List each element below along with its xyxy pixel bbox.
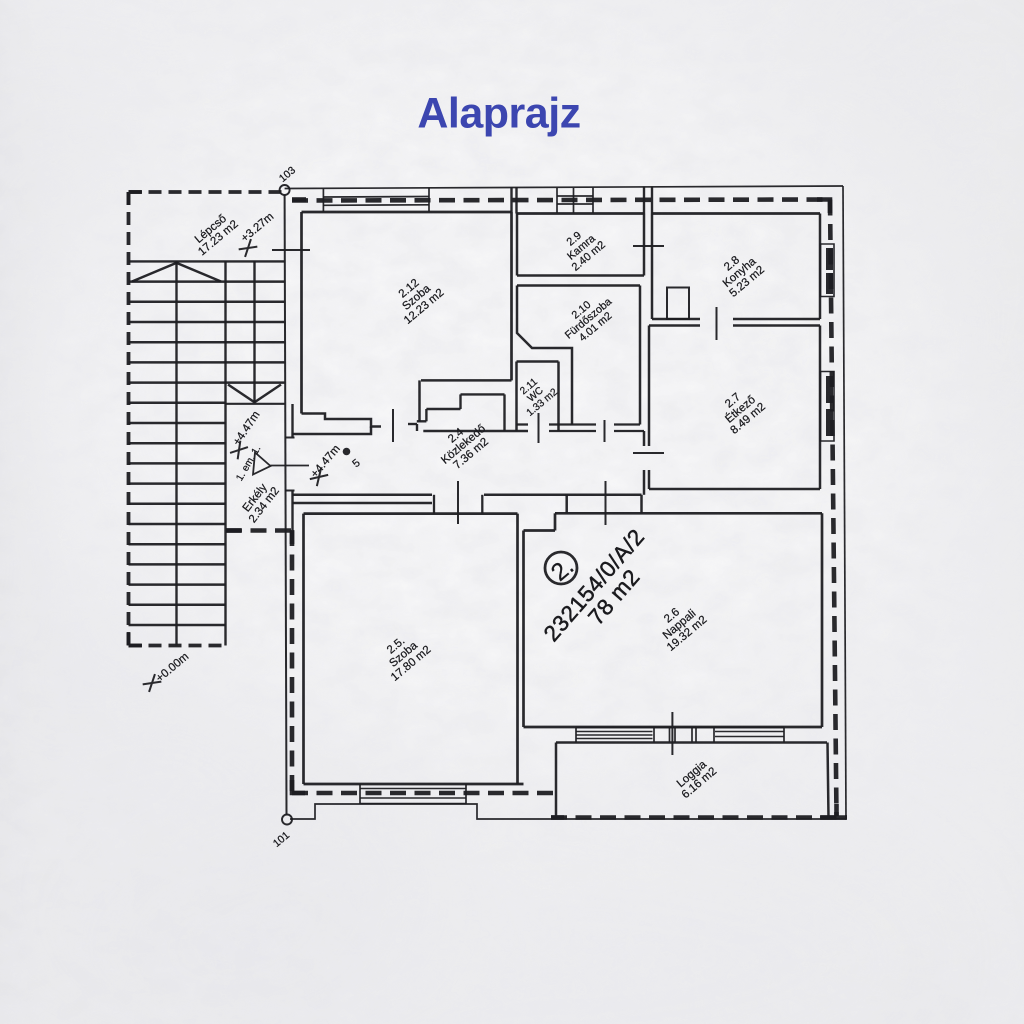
svg-text:Alaprajz: Alaprajz <box>417 90 580 138</box>
